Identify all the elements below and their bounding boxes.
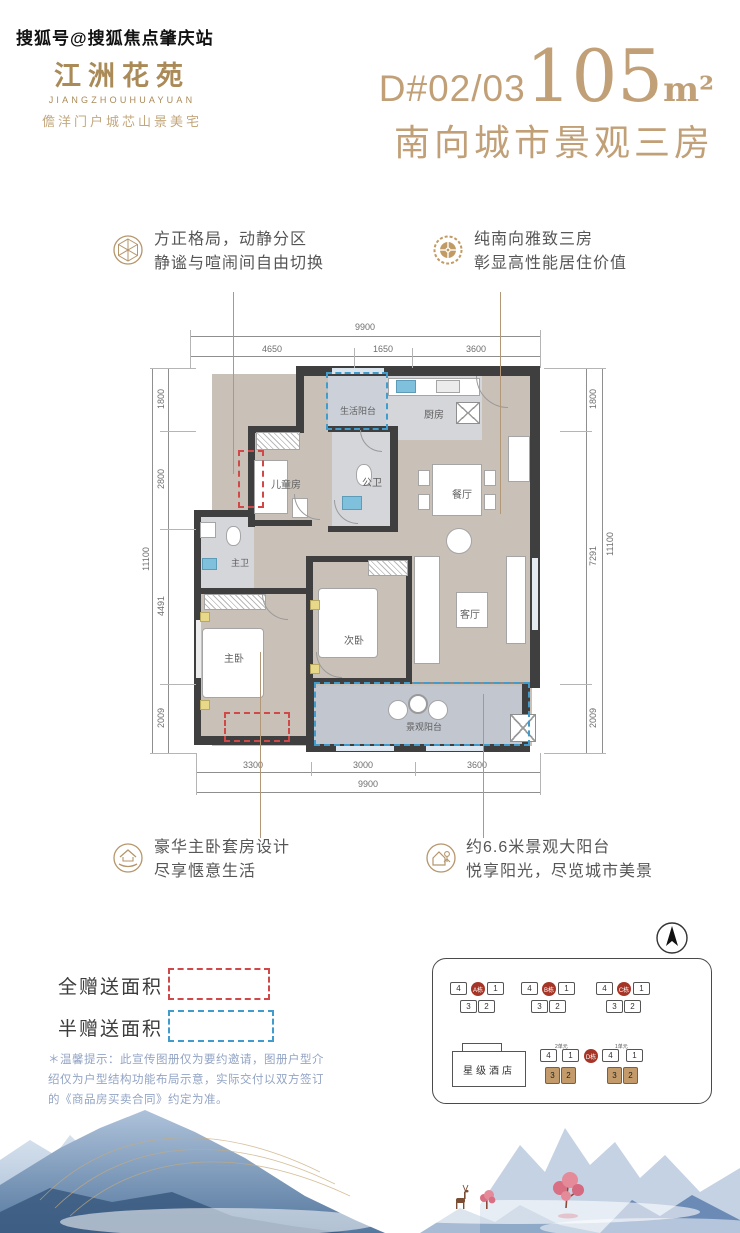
unit-3-highlighted: 3 xyxy=(545,1067,560,1084)
headline: D#02/03105m² 南向城市景观三房 xyxy=(379,44,714,166)
legend-half-gift-label: 半赠送面积 xyxy=(58,1014,163,1041)
room-label-master-bed: 主卧 xyxy=(214,650,254,665)
unit-1: 1 xyxy=(487,982,504,995)
unit-2: 2 xyxy=(478,1000,495,1013)
legend-full-gift-label: 全赠送面积 xyxy=(58,972,163,999)
brand-latin-name: JIANGZHOUHUAYUAN xyxy=(42,95,202,105)
dim-segment: 2800 xyxy=(156,457,166,501)
unit-3: 3 xyxy=(606,1000,623,1013)
room-label-view-balcony: 景观阳台 xyxy=(396,720,452,733)
callout-line: 彰显高性能居住价值 xyxy=(474,252,627,276)
unit-3-highlighted: 3 xyxy=(607,1067,622,1084)
building-c: 4 1 C栋 3 2 xyxy=(596,976,652,1018)
room-label-children-room: 儿童房 xyxy=(258,476,314,491)
room-label-second-bed: 次卧 xyxy=(332,632,376,647)
callout-top-right: 纯南向雅致三房 彰显高性能居住价值 xyxy=(474,228,627,276)
unit-3: 3 xyxy=(531,1000,548,1013)
dim-total-right: 11100 xyxy=(605,522,615,566)
callout-line: 豪华主卧套房设计 xyxy=(154,836,290,860)
callout-top-left: 方正格局，动静分区 静谧与喧闹间自由切换 xyxy=(154,228,324,276)
unit-2-highlighted: 2 xyxy=(561,1067,576,1084)
unit-1: 1 xyxy=(626,1049,643,1062)
callout-line: 尽享惬意生活 xyxy=(154,860,290,884)
unit-2: 2 xyxy=(549,1000,566,1013)
unit-4: 4 xyxy=(602,1049,619,1062)
brand-name: 江洲花苑 xyxy=(42,54,202,93)
unit-1: 1 xyxy=(562,1049,579,1062)
dim-segment: 3000 xyxy=(341,760,385,770)
connector-line xyxy=(260,652,261,838)
dim-segment: 4650 xyxy=(250,344,294,354)
dim-total-top: 9900 xyxy=(343,322,387,332)
dim-total-bottom: 9900 xyxy=(346,779,390,789)
half-gift-zone-view-balcony xyxy=(314,682,530,746)
site-plan: 4 1 A栋 3 2 4 1 B栋 3 2 4 1 C栋 3 2 星级酒店 2单… xyxy=(432,958,712,1104)
headline-subtitle: 南向城市景观三房 xyxy=(379,114,714,166)
disclaimer-line: 绍仅为户型结构功能布局示意，实际交付以双方签订 xyxy=(48,1070,348,1090)
legend-half-gift-swatch xyxy=(168,1010,274,1042)
rosette-filled-icon xyxy=(430,232,466,268)
watermark-text: 搜狐号@搜狐焦点肇庆站 xyxy=(16,24,214,49)
connector-line xyxy=(233,292,234,474)
area-value: 105 xyxy=(526,44,663,109)
callout-line: 悦享阳光，尽览城市美景 xyxy=(466,860,653,884)
building-a-badge: A栋 xyxy=(471,982,485,996)
room-label-dining: 餐厅 xyxy=(440,486,484,501)
full-gift-zone-master-bed xyxy=(224,712,290,742)
callout-line: 约6.6米景观大阳台 xyxy=(466,836,653,860)
building-b-badge: B栋 xyxy=(542,982,556,996)
callout-line: 纯南向雅致三房 xyxy=(474,228,627,252)
dim-segment: 7291 xyxy=(588,534,598,578)
room-label-kitchen: 厨房 xyxy=(414,406,454,421)
dim-segment: 3600 xyxy=(455,760,499,770)
callout-bottom-left: 豪华主卧套房设计 尽享惬意生活 xyxy=(154,836,290,884)
unit-3: 3 xyxy=(460,1000,477,1013)
building-a: 4 1 A栋 3 2 xyxy=(450,976,506,1018)
area-unit: m² xyxy=(663,70,714,110)
dim-segment: 1800 xyxy=(588,377,598,421)
building-d: 2单元 1单元 4 1 D栋 4 1 3 2 3 2 xyxy=(540,1044,644,1088)
room-label-life-balcony: 生活阳台 xyxy=(326,404,390,417)
unit-code: D#02/03 xyxy=(379,68,526,110)
building-d-badge: D栋 xyxy=(584,1049,598,1063)
unit-4: 4 xyxy=(521,982,538,995)
dim-segment: 3600 xyxy=(454,344,498,354)
room-label-guest-bath: 公卫 xyxy=(350,474,394,489)
room-label-living: 客厅 xyxy=(448,606,492,621)
unit-4: 4 xyxy=(540,1049,557,1062)
landscape-art xyxy=(0,1100,740,1233)
rosette-outline-icon xyxy=(110,232,146,268)
building-b: 4 1 B栋 3 2 xyxy=(521,976,577,1018)
connector-line xyxy=(500,292,501,514)
dim-segment: 1650 xyxy=(361,344,405,354)
callout-bottom-right: 约6.6米景观大阳台 悦享阳光，尽览城市美景 xyxy=(466,836,653,884)
brand-logo: 江洲花苑 JIANGZHOUHUAYUAN 儋洋门户城芯山景美宅 xyxy=(42,54,202,130)
unit-2: 2 xyxy=(624,1000,641,1013)
unit-4: 4 xyxy=(596,982,613,995)
dim-segment: 1800 xyxy=(156,377,166,421)
dim-total-left: 11100 xyxy=(141,537,151,581)
unit-1: 1 xyxy=(558,982,575,995)
hotel-block: 星级酒店 xyxy=(452,1051,526,1087)
callout-line: 静谧与喧闹间自由切换 xyxy=(154,252,324,276)
disclaimer-line: ＊温馨提示：此宣传图册仅为要约邀请，图册户型介 xyxy=(48,1050,348,1070)
north-arrow-icon xyxy=(654,920,690,956)
building-c-badge: C栋 xyxy=(617,982,631,996)
half-gift-zone-life-balcony xyxy=(326,372,388,430)
brand-tagline: 儋洋门户城芯山景美宅 xyxy=(42,111,202,130)
dim-segment: 2009 xyxy=(588,696,598,740)
dim-segment: 3300 xyxy=(231,760,275,770)
poster-page: 搜狐号@搜狐焦点肇庆站 江洲花苑 JIANGZHOUHUAYUAN 儋洋门户城芯… xyxy=(0,0,740,1233)
callout-line: 方正格局，动静分区 xyxy=(154,228,324,252)
legend-full-gift-swatch xyxy=(168,968,270,1000)
hand-house-icon xyxy=(110,840,146,876)
dim-segment: 2009 xyxy=(156,696,166,740)
house-person-icon xyxy=(423,840,459,876)
unit-2-highlighted: 2 xyxy=(623,1067,638,1084)
dim-segment: 4491 xyxy=(156,584,166,628)
unit-1: 1 xyxy=(633,982,650,995)
unit-4: 4 xyxy=(450,982,467,995)
room-label-master-bath: 主卫 xyxy=(222,556,258,569)
